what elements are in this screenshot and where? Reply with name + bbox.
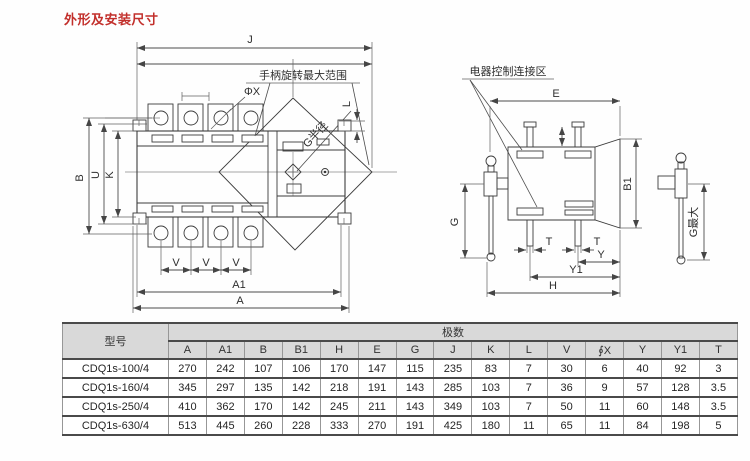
value-cell: 7 — [510, 378, 548, 397]
column-header: G — [396, 341, 434, 359]
front-view-drawing: J 手柄旋转最大范围 ΦX G半径 — [74, 34, 397, 313]
dim-a1-label: A1 — [232, 279, 245, 291]
table-row: CDQ1s-250/4 410 362 170 142 245 211 143 … — [63, 397, 738, 416]
dim-j: J — [137, 34, 372, 168]
value-cell: 148 — [661, 397, 699, 416]
handle-detail-drawing: G最大 — [658, 153, 710, 264]
value-cell: 345 — [169, 378, 207, 397]
value-cell: 218 — [320, 378, 358, 397]
model-cell: CDQ1s-160/4 — [63, 378, 169, 397]
value-cell: 260 — [244, 416, 282, 435]
value-cell: 107 — [244, 359, 282, 378]
value-cell: 92 — [661, 359, 699, 378]
value-cell: 245 — [320, 397, 358, 416]
value-cell: 198 — [661, 416, 699, 435]
value-cell: 410 — [169, 397, 207, 416]
column-header: B — [244, 341, 282, 359]
column-header: V — [548, 341, 586, 359]
g-max-label: G最大 — [686, 207, 700, 238]
value-cell: 11 — [586, 397, 624, 416]
dim-g-label: G — [449, 218, 461, 227]
value-cell: 36 — [548, 378, 586, 397]
column-header: J — [434, 341, 472, 359]
control-area-label: 电器控制连接区 — [470, 64, 547, 78]
value-cell: 3.5 — [699, 397, 737, 416]
value-cell: 106 — [282, 359, 320, 378]
value-cell: 40 — [624, 359, 662, 378]
value-cell: 297 — [206, 378, 244, 397]
column-header: A — [169, 341, 207, 359]
value-cell: 30 — [548, 359, 586, 378]
phi-x-callout: ΦX — [211, 86, 261, 129]
column-header: Y1 — [661, 341, 699, 359]
value-cell: 57 — [624, 378, 662, 397]
model-cell: CDQ1s-250/4 — [63, 397, 169, 416]
value-cell: 445 — [206, 416, 244, 435]
dim-e-label: E — [552, 88, 559, 100]
value-cell: 128 — [661, 378, 699, 397]
column-header: E — [358, 341, 396, 359]
value-cell: 103 — [472, 378, 510, 397]
value-cell: 349 — [434, 397, 472, 416]
value-cell: 6 — [586, 359, 624, 378]
value-cell: 5 — [699, 416, 737, 435]
value-cell: 228 — [282, 416, 320, 435]
column-header: ∮X — [586, 341, 624, 359]
value-cell: 7 — [510, 359, 548, 378]
model-cell: CDQ1s-100/4 — [63, 359, 169, 378]
value-cell: 83 — [472, 359, 510, 378]
value-cell: 11 — [586, 416, 624, 435]
dim-k: K — [104, 131, 136, 217]
dim-e: E — [490, 88, 620, 152]
dim-a-label: A — [236, 295, 244, 307]
value-cell: 242 — [206, 359, 244, 378]
dim-j-label: J — [247, 34, 253, 46]
value-cell: 50 — [548, 397, 586, 416]
phi-x-label: ΦX — [244, 86, 261, 98]
value-cell: 84 — [624, 416, 662, 435]
value-cell: 147 — [358, 359, 396, 378]
value-cell: 143 — [396, 378, 434, 397]
dim-u-label: U — [90, 171, 102, 179]
column-header: L — [510, 341, 548, 359]
column-header: Y — [624, 341, 662, 359]
dim-g: G — [449, 184, 487, 258]
dim-v-label: V — [202, 257, 210, 269]
dim-h: H — [487, 262, 620, 297]
dim-t-label: T — [594, 236, 601, 248]
value-cell: 3.5 — [699, 378, 737, 397]
column-header: T — [699, 341, 737, 359]
dim-v-label: V — [172, 257, 180, 269]
value-cell: 211 — [358, 397, 396, 416]
value-cell: 513 — [169, 416, 207, 435]
value-cell: 11 — [510, 416, 548, 435]
dim-v-group: V V V — [161, 241, 251, 275]
dim-a: A — [133, 226, 349, 313]
value-cell: 333 — [320, 416, 358, 435]
value-cell: 143 — [396, 397, 434, 416]
value-cell: 60 — [624, 397, 662, 416]
value-cell: 235 — [434, 359, 472, 378]
dim-h-label: H — [549, 280, 557, 292]
value-cell: 103 — [472, 397, 510, 416]
table-row: CDQ1s-160/4 345 297 135 142 218 191 143 … — [63, 378, 738, 397]
column-header: H — [320, 341, 358, 359]
dim-lug-width — [182, 92, 209, 101]
column-header: A1 — [206, 341, 244, 359]
value-cell: 65 — [548, 416, 586, 435]
dim-y-label: Y — [597, 249, 605, 261]
table-row: CDQ1s-630/4 513 445 260 228 333 270 191 … — [63, 416, 738, 435]
poles-column-header: 极数 — [169, 323, 738, 341]
value-cell: 270 — [358, 416, 396, 435]
column-header: K — [472, 341, 510, 359]
table-header-row-1: 型号 极数 — [63, 323, 738, 341]
dimension-drawings: J 手柄旋转最大范围 ΦX G半径 — [0, 0, 750, 318]
value-cell: 135 — [244, 378, 282, 397]
value-cell: 142 — [282, 378, 320, 397]
catalog-page: { "page": { "title": "外形及安装尺寸" }, "front… — [0, 0, 750, 461]
value-cell: 142 — [282, 397, 320, 416]
value-cell: 170 — [244, 397, 282, 416]
value-cell: 170 — [320, 359, 358, 378]
dim-g-max: G最大 — [686, 184, 710, 260]
value-cell: 425 — [434, 416, 472, 435]
value-cell: 9 — [586, 378, 624, 397]
value-cell: 180 — [472, 416, 510, 435]
handle-range-label: 手柄旋转最大范围 — [259, 68, 347, 82]
table-row: CDQ1s-100/4 270 242 107 106 170 147 115 … — [63, 359, 738, 378]
column-header: B1 — [282, 341, 320, 359]
dim-b1: B1 — [620, 139, 642, 228]
dim-b1-label: B1 — [622, 177, 634, 190]
dim-t-label: T — [546, 236, 553, 248]
value-cell: 285 — [434, 378, 472, 397]
value-cell: 115 — [396, 359, 434, 378]
dim-b-label: B — [74, 174, 86, 181]
value-cell: 7 — [510, 397, 548, 416]
dim-l-label: L — [341, 101, 353, 107]
value-cell: 362 — [206, 397, 244, 416]
dimension-table: 型号 极数 A A1 B B1 H E G J K L V ∮X Y Y1 T … — [62, 322, 738, 436]
side-view-drawing: 电器控制连接区 — [449, 64, 642, 297]
dim-u: U — [90, 124, 147, 224]
value-cell: 3 — [699, 359, 737, 378]
dim-v-label: V — [232, 257, 240, 269]
dim-y1-label: Y1 — [569, 264, 582, 276]
value-cell: 191 — [358, 378, 396, 397]
model-cell: CDQ1s-630/4 — [63, 416, 169, 435]
value-cell: 270 — [169, 359, 207, 378]
dim-k-label: K — [104, 171, 116, 179]
model-column-header: 型号 — [63, 323, 169, 359]
value-cell: 191 — [396, 416, 434, 435]
